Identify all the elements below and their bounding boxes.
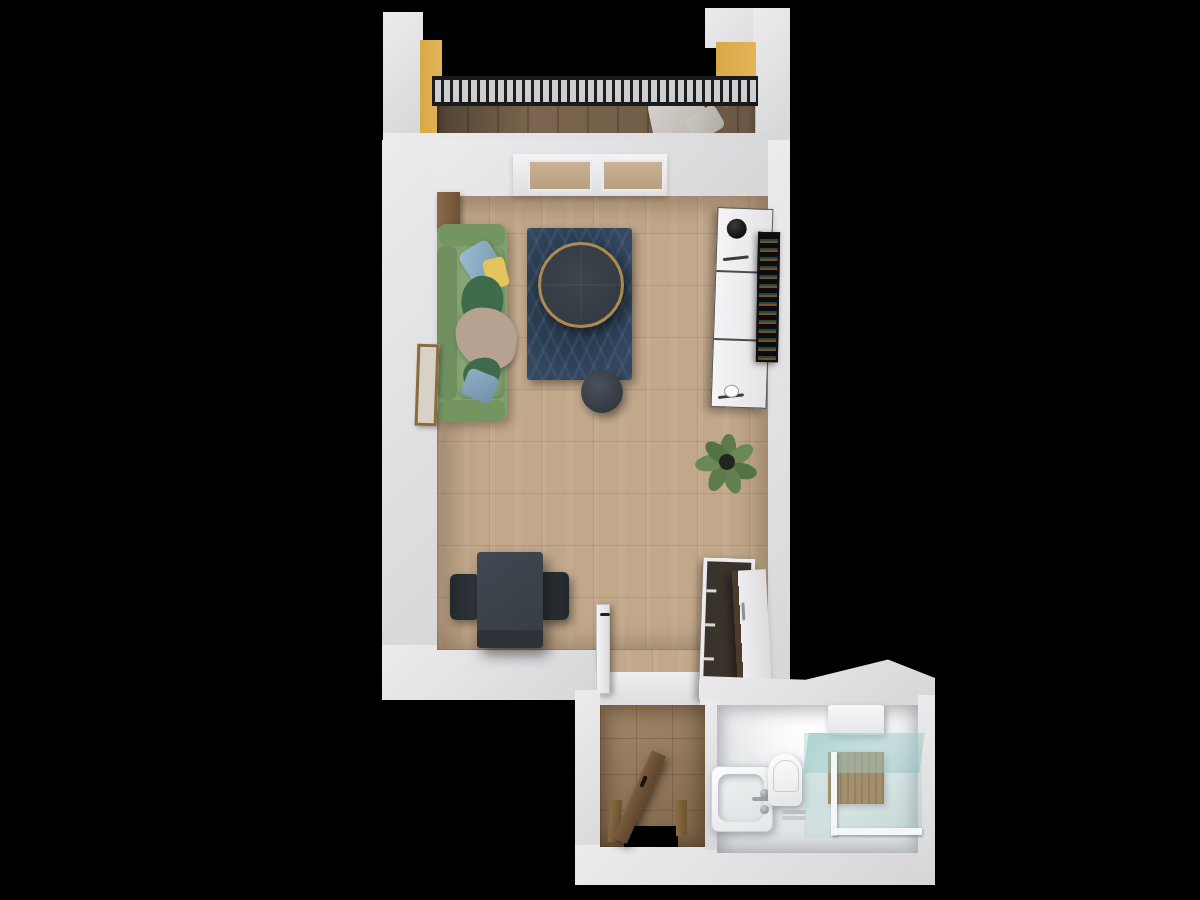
- interior-door-open[interactable]: [596, 604, 610, 694]
- shower-glass-enclosure[interactable]: [804, 733, 922, 838]
- dining-chair-right[interactable]: [539, 572, 569, 620]
- plant-center: [719, 454, 735, 470]
- floor-drain: [782, 810, 806, 814]
- toilet[interactable]: [768, 754, 802, 806]
- door-handle: [600, 613, 610, 616]
- pouf[interactable]: [581, 371, 623, 413]
- livingroom-floor-doorway-patch: [600, 650, 707, 674]
- wardrobe-handle: [741, 602, 745, 620]
- potted-plant[interactable]: [698, 434, 756, 492]
- floorplan-canvas: [0, 0, 1200, 900]
- sofa-armrest-bottom: [439, 400, 505, 422]
- shower-frame-bottom: [831, 828, 922, 835]
- balcony-right-wall: [753, 8, 790, 140]
- round-coffee-table[interactable]: [538, 242, 624, 328]
- balcony-left-wall: [383, 12, 423, 140]
- sofa[interactable]: [437, 224, 507, 422]
- leaning-picture-frame[interactable]: [415, 344, 440, 427]
- wardrobe-shelf-line: [706, 589, 716, 592]
- entry-door-handle: [639, 775, 648, 788]
- window-glass-left: [528, 160, 592, 191]
- entry-door-frame-right: [676, 800, 687, 836]
- faucet-handle: [760, 805, 769, 814]
- shelf-bracket: [723, 255, 749, 261]
- doorway-threshold: [595, 672, 710, 708]
- shower-frame-vertical: [831, 752, 837, 836]
- dining-table-edge: [477, 630, 543, 648]
- balcony-railing: [432, 76, 758, 106]
- wardrobe-shelf-line: [705, 623, 715, 626]
- dining-table[interactable]: [477, 552, 543, 648]
- window-glass-right: [602, 160, 664, 191]
- wardrobe-shelf-line: [704, 657, 714, 660]
- water-heater-cabinet[interactable]: [828, 705, 884, 735]
- dining-chair-left[interactable]: [450, 574, 480, 620]
- balcony-window-frame[interactable]: [513, 154, 667, 196]
- bathtub[interactable]: [711, 766, 773, 832]
- sofa-backrest: [437, 246, 457, 400]
- livingroom-bottom-wall: [382, 645, 600, 700]
- sofa-armrest-top: [439, 224, 505, 246]
- black-round-pot: [726, 218, 747, 239]
- side-console[interactable]: [437, 192, 460, 228]
- wall-art-tv[interactable]: [756, 232, 780, 362]
- toilet-lid-line: [773, 760, 799, 792]
